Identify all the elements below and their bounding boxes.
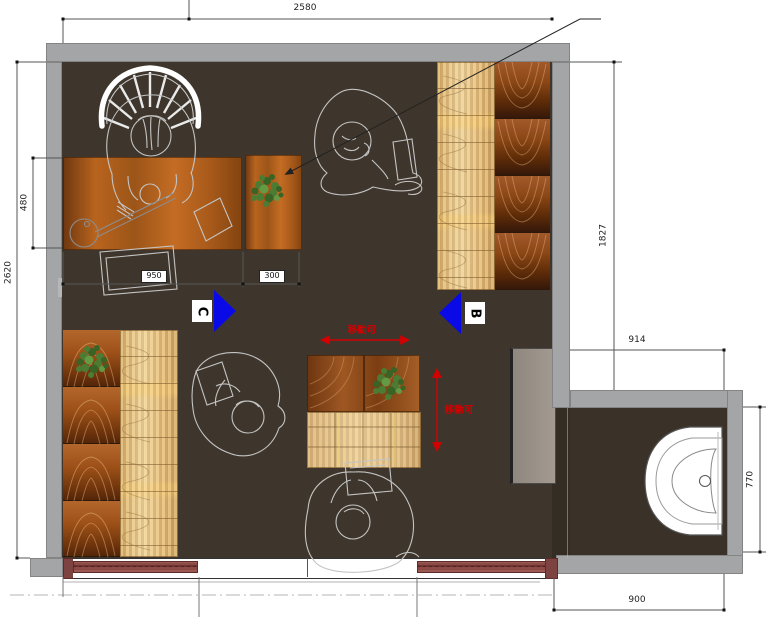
dim-bath-bottom-width: 900 <box>607 595 667 606</box>
view-marker-b-label: B <box>465 302 485 324</box>
dim-top-width: 2580 <box>255 3 355 14</box>
person-at-desk <box>70 95 232 295</box>
dimension-endpoint-dots <box>16 18 762 612</box>
plant-icon <box>76 174 406 400</box>
movable-note-horizontal: 移動可 <box>332 322 392 336</box>
view-marker-c-label: C <box>192 300 212 322</box>
person-sitting-bottom <box>305 459 419 572</box>
linework-overlay <box>0 0 767 619</box>
dimension-lines <box>17 0 766 610</box>
dim-left-total-height: 2620 <box>4 243 15 303</box>
floor-plan: 2580 2620 480 950 300 1827 914 770 900 C… <box>0 0 767 619</box>
dim-desk-width: 950 <box>141 270 167 283</box>
dim-bath-right-depth: 770 <box>746 450 757 510</box>
view-marker-c-triangle <box>214 290 236 332</box>
dim-bath-top-width: 914 <box>607 335 667 346</box>
person-reading-top-right <box>315 89 422 195</box>
center-table-grain <box>308 355 568 558</box>
desk-chair <box>101 68 198 128</box>
bathtub <box>645 427 722 535</box>
movable-note-vertical: 移動可 <box>442 402 476 416</box>
dim-desk-depth: 480 <box>20 173 31 233</box>
dim-right-upper-height: 1827 <box>599 206 610 266</box>
view-marker-b-triangle <box>439 292 461 334</box>
person-standing-center <box>192 353 285 456</box>
grid-reference-lines <box>10 577 553 617</box>
dim-side-table-width: 300 <box>259 270 285 283</box>
